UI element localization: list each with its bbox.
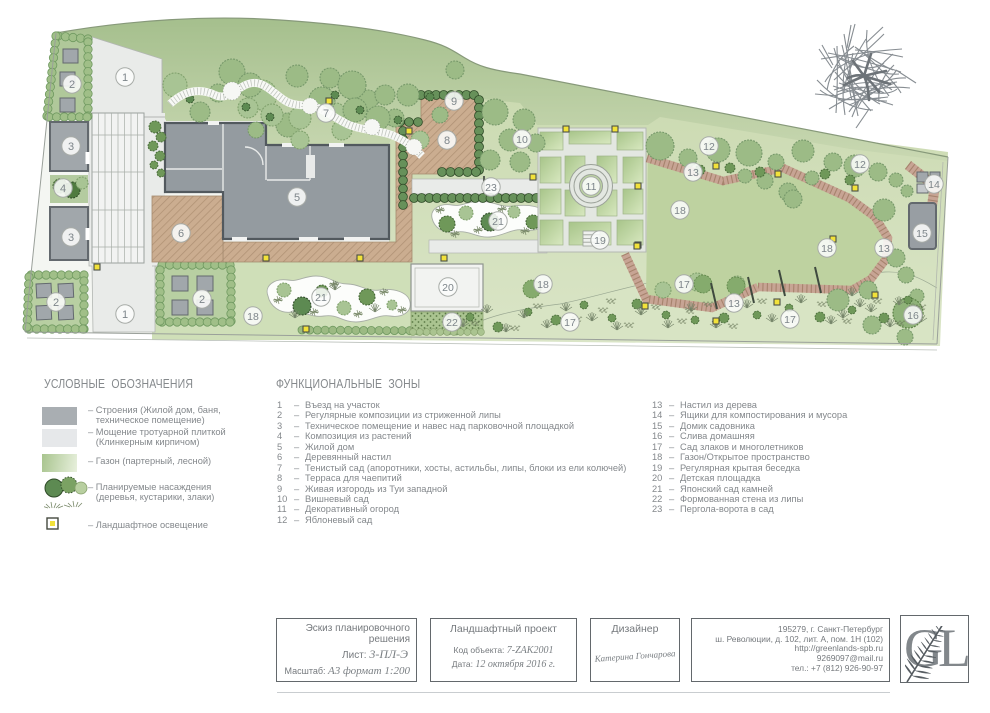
svg-text:1: 1 xyxy=(122,309,128,321)
svg-text:2: 2 xyxy=(53,297,59,309)
svg-text:21: 21 xyxy=(492,216,504,228)
svg-text:6: 6 xyxy=(178,228,184,240)
svg-text:1: 1 xyxy=(122,72,128,84)
svg-text:17: 17 xyxy=(678,279,690,291)
svg-text:10: 10 xyxy=(516,134,528,146)
svg-text:12: 12 xyxy=(854,159,866,171)
svg-text:18: 18 xyxy=(537,279,549,291)
svg-text:2: 2 xyxy=(69,79,75,91)
svg-text:18: 18 xyxy=(821,243,833,255)
svg-text:13: 13 xyxy=(728,298,740,310)
svg-text:9: 9 xyxy=(451,96,457,108)
svg-text:18: 18 xyxy=(247,311,259,323)
svg-text:8: 8 xyxy=(444,135,450,147)
svg-text:17: 17 xyxy=(564,317,576,329)
svg-text:19: 19 xyxy=(594,235,606,247)
svg-text:23: 23 xyxy=(485,182,497,194)
svg-text:22: 22 xyxy=(446,317,458,329)
svg-text:3: 3 xyxy=(68,141,74,153)
svg-text:7: 7 xyxy=(323,108,329,120)
svg-text:13: 13 xyxy=(687,167,699,179)
svg-text:21: 21 xyxy=(315,292,327,304)
svg-text:4: 4 xyxy=(60,183,66,195)
svg-text:17: 17 xyxy=(784,314,796,326)
svg-text:11: 11 xyxy=(586,181,597,193)
svg-text:5: 5 xyxy=(294,192,300,204)
svg-text:14: 14 xyxy=(928,179,940,191)
svg-text:15: 15 xyxy=(916,228,928,240)
svg-text:3: 3 xyxy=(68,232,74,244)
svg-text:12: 12 xyxy=(703,141,715,153)
svg-text:18: 18 xyxy=(674,205,686,217)
svg-text:20: 20 xyxy=(442,282,454,294)
svg-text:16: 16 xyxy=(907,310,919,322)
svg-text:2: 2 xyxy=(199,294,205,306)
svg-text:13: 13 xyxy=(878,243,890,255)
